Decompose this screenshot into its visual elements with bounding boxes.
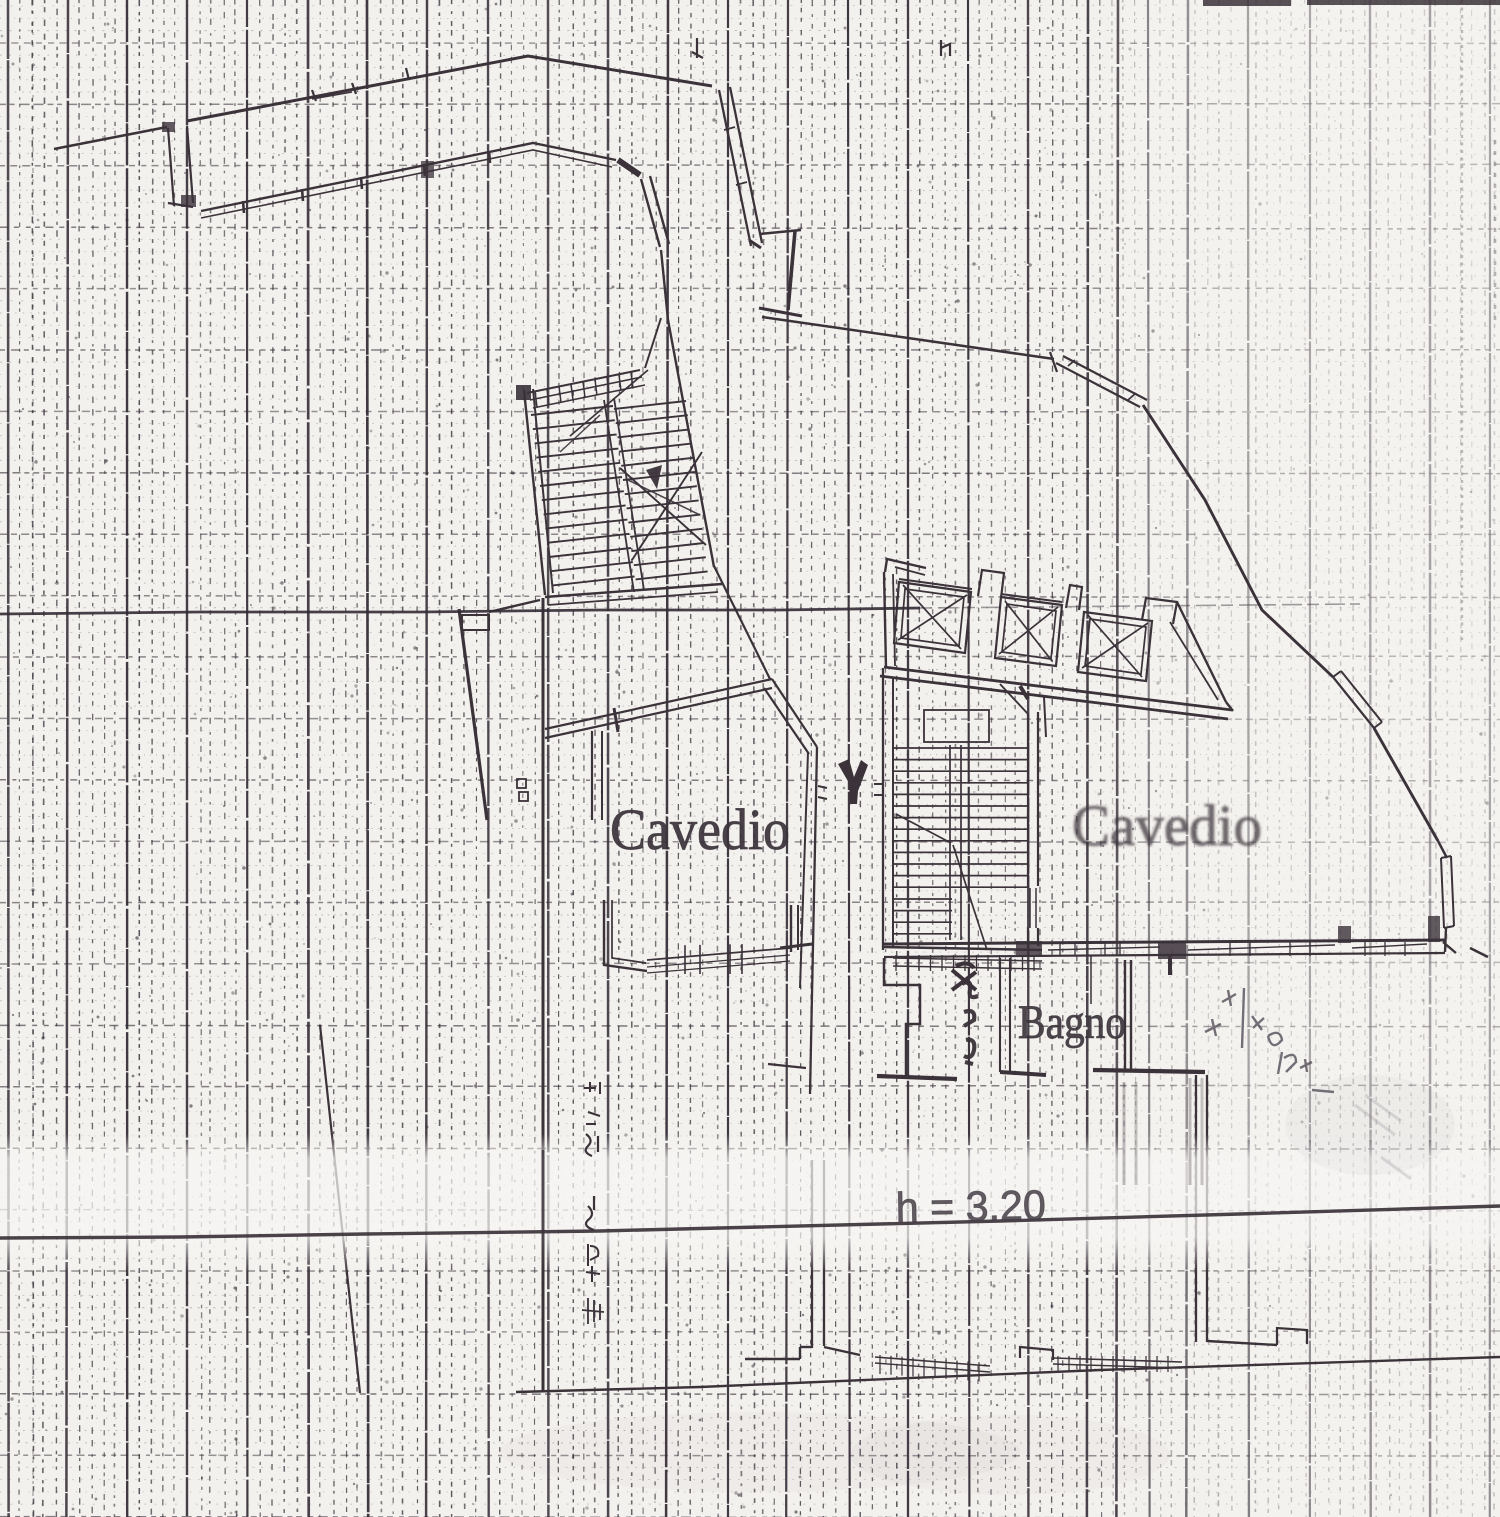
- svg-text:Cavedio: Cavedio: [610, 797, 790, 862]
- svg-text:Cavedio: Cavedio: [1072, 793, 1262, 858]
- svg-text:Bagno: Bagno: [1018, 996, 1126, 1049]
- svg-text:h = 3.20: h = 3.20: [895, 1181, 1046, 1231]
